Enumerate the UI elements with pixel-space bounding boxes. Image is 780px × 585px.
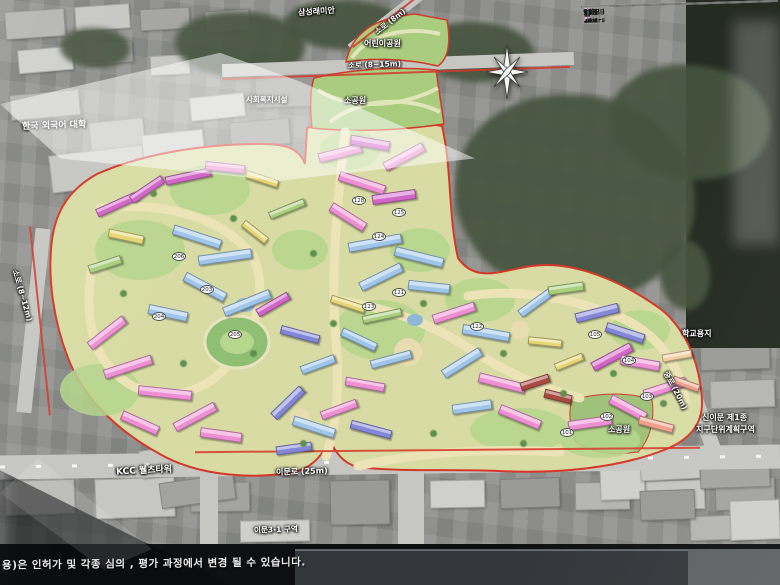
building-block — [328, 202, 367, 232]
building-number-badge: 103 — [640, 392, 654, 401]
building-number-badge: 203 — [200, 285, 214, 294]
label-sinimun-district-1: 신이문 제1종 — [702, 412, 747, 423]
building-block — [451, 399, 492, 414]
tree-dot — [560, 390, 567, 397]
building-block — [574, 303, 619, 323]
building-number-badge: 124 — [372, 232, 386, 241]
building-block — [87, 316, 128, 351]
label-small-park-top: 소공원 — [344, 95, 366, 106]
building-block — [554, 353, 585, 372]
apartment-buildings — [0, 0, 780, 585]
label-school-site: 학교용지 — [682, 328, 711, 339]
building-block — [528, 336, 563, 348]
tree-dot — [120, 290, 127, 297]
building-number-badge: 122 — [470, 322, 484, 331]
building-block — [129, 175, 166, 204]
label-social-welfare: 사회복지시설 — [246, 94, 287, 105]
tree-dot — [250, 350, 257, 357]
building-number-badge: 206 — [172, 252, 186, 261]
building-block — [300, 354, 337, 375]
building-block — [138, 385, 193, 401]
building-number-badge: 101 — [560, 428, 574, 437]
building-block — [107, 228, 144, 244]
building-block — [103, 355, 154, 380]
building-block — [637, 415, 674, 433]
building-number-badge: 123 — [362, 302, 376, 311]
label-small-park-right: 소공원 — [608, 424, 630, 435]
building-block — [120, 410, 161, 435]
building-block — [350, 420, 393, 440]
tree-dot — [520, 440, 527, 447]
tree-dot — [230, 215, 237, 222]
tree-dot — [660, 400, 667, 407]
building-block — [330, 295, 367, 314]
building-block — [270, 386, 306, 421]
building-block — [200, 427, 243, 443]
tree-dot — [180, 360, 187, 367]
table-cell: 3,069 세대 — [582, 6, 610, 24]
railway-yard — [688, 549, 780, 585]
building-number-badge: 104 — [622, 356, 636, 365]
tree-dot — [310, 250, 317, 257]
building-block — [172, 225, 223, 250]
building-block — [432, 301, 477, 324]
building-block — [543, 389, 572, 405]
building-number-badge: 105 — [588, 330, 602, 339]
building-block — [604, 322, 645, 344]
label-children-park: 어린이공원 — [364, 38, 401, 49]
building-block — [198, 248, 253, 265]
tree-dot — [150, 190, 157, 197]
tree-dot — [420, 300, 427, 307]
building-block — [394, 246, 445, 268]
label-imun-ro: 이문로 (25m) — [276, 465, 328, 478]
building-block — [548, 282, 585, 296]
building-block — [338, 171, 387, 195]
site-plan-photo: 2062032042051281251241211231221051041031… — [0, 0, 780, 585]
building-block — [340, 327, 378, 351]
tree-dot — [610, 370, 617, 377]
compass-rose-icon — [483, 44, 531, 100]
railway-tracks — [295, 549, 695, 585]
building-block — [370, 350, 413, 370]
tree-dot — [300, 440, 307, 447]
tree-dot — [330, 320, 337, 327]
building-block — [408, 280, 451, 294]
building-block — [461, 324, 510, 342]
building-block — [441, 347, 484, 379]
tree-dot — [500, 350, 507, 357]
building-block — [87, 255, 122, 274]
building-number-badge: 205 — [228, 330, 242, 339]
disclaimer-text: 용)은 인허가 및 각종 심의 , 평가 과정에서 변경 될 수 있습니다. — [2, 554, 306, 572]
building-block — [662, 349, 693, 362]
building-number-badge: 121 — [392, 288, 406, 297]
building-block — [165, 167, 212, 185]
building-number-badge: 102 — [600, 412, 614, 421]
tree-dot — [430, 430, 437, 437]
building-block — [345, 377, 386, 393]
building-number-badge: 125 — [392, 208, 406, 217]
building-block — [241, 220, 270, 245]
label-sinimun-district-2: 지구단위계획구역 — [696, 424, 755, 435]
label-university: 한국 외국어 대학 — [22, 117, 87, 132]
building-block — [292, 415, 337, 438]
building-block — [320, 399, 359, 420]
building-block — [498, 404, 543, 430]
building-number-badge: 128 — [352, 196, 366, 205]
label-imun-3-1: 이문3-1 구역 — [254, 523, 298, 536]
building-block — [317, 143, 362, 163]
building-number-badge: 204 — [152, 312, 166, 321]
building-block — [280, 325, 321, 344]
label-soro-8-15m: 소로 (8~15m) — [348, 58, 401, 71]
building-block — [268, 198, 306, 220]
building-block — [245, 170, 280, 188]
